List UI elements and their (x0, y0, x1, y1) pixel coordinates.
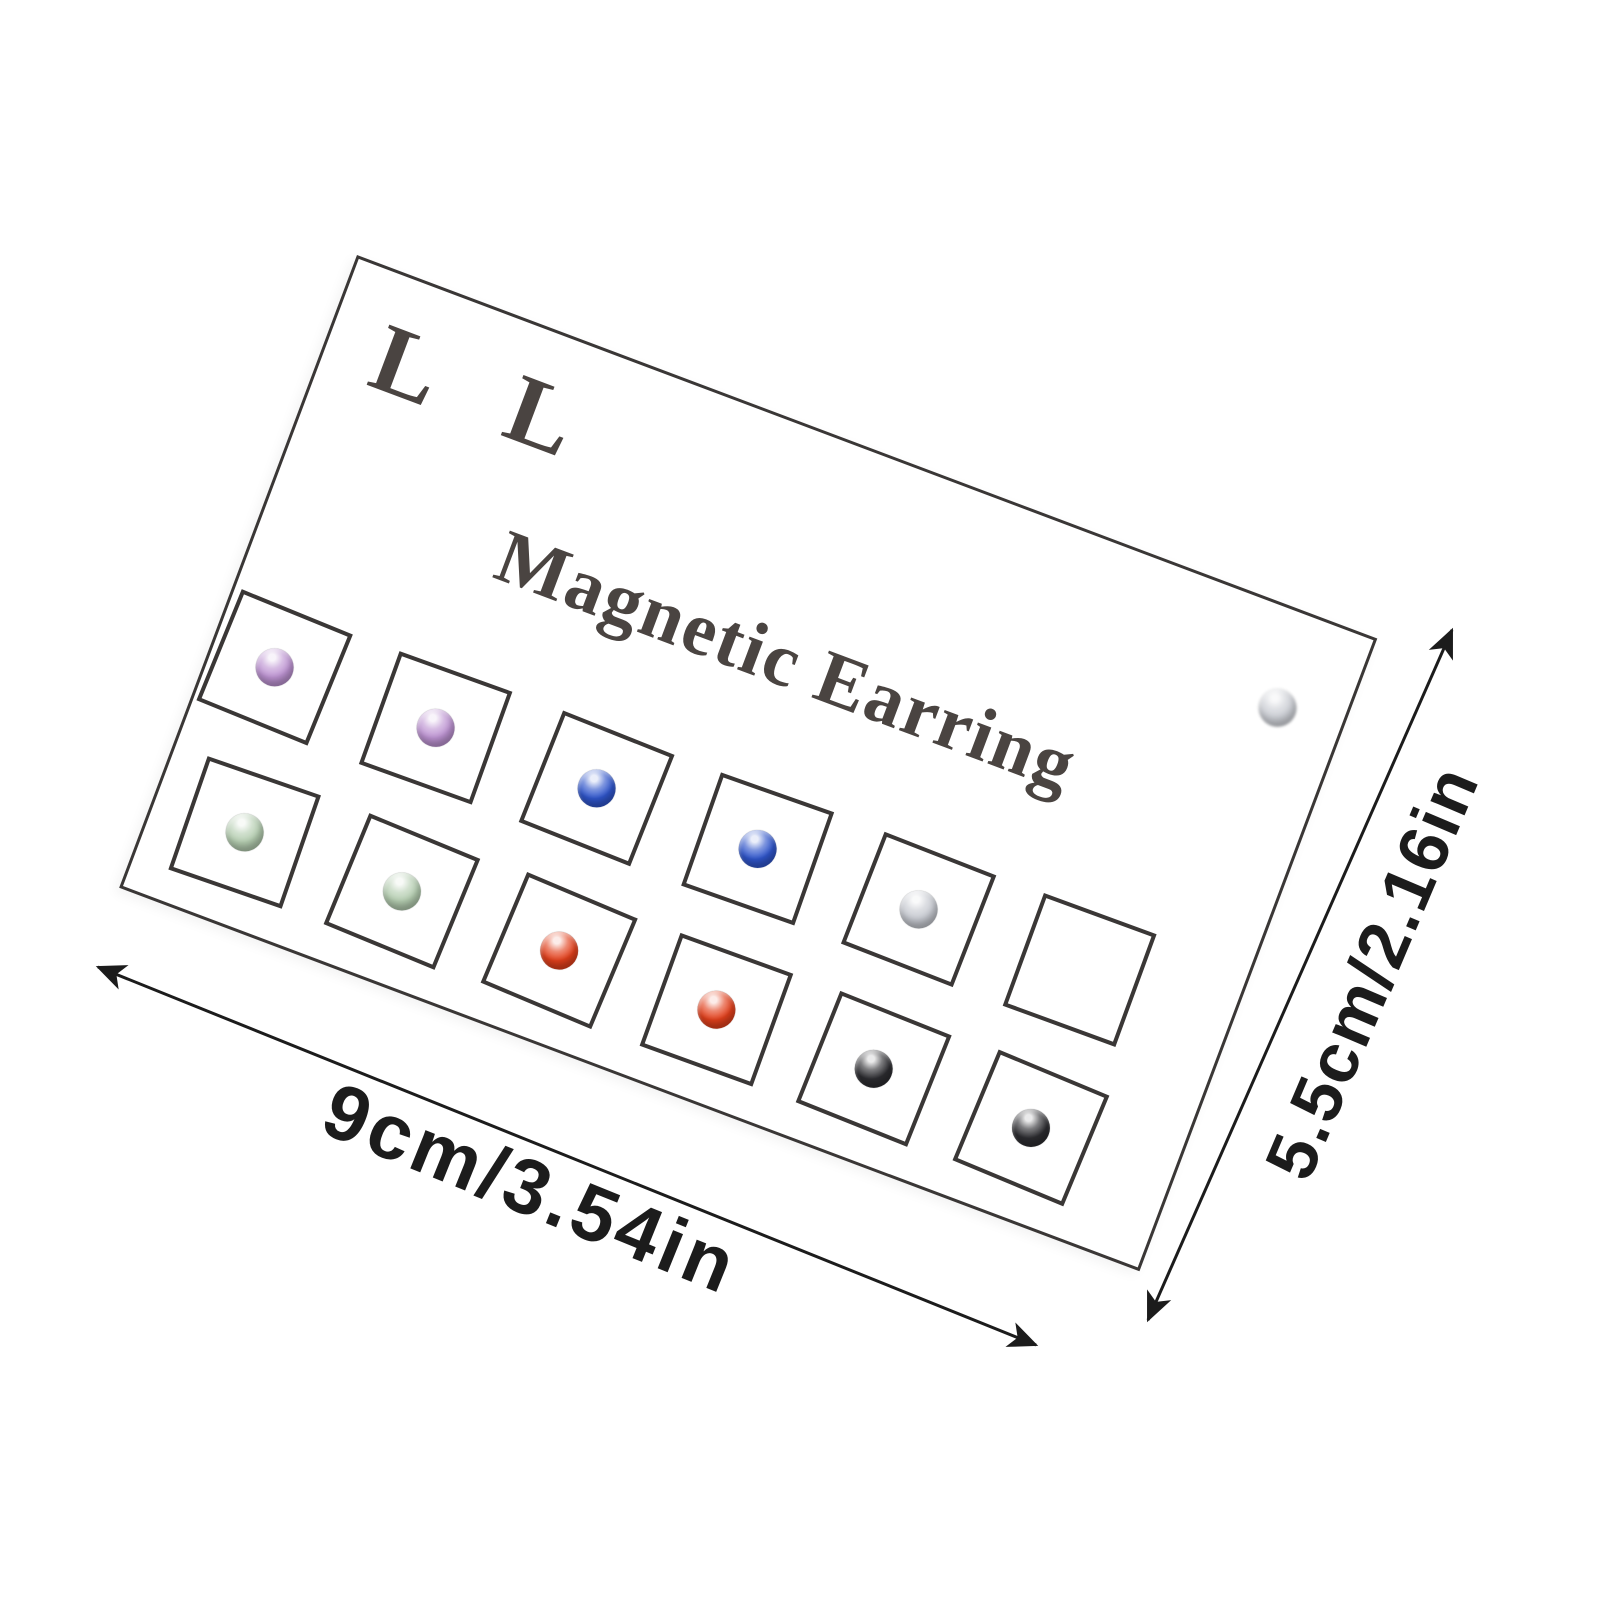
product-dimension-diagram: L L Magnetic Earring 9cm/3.5 (0, 0, 1600, 1600)
dimension-arrows (0, 0, 1600, 1600)
